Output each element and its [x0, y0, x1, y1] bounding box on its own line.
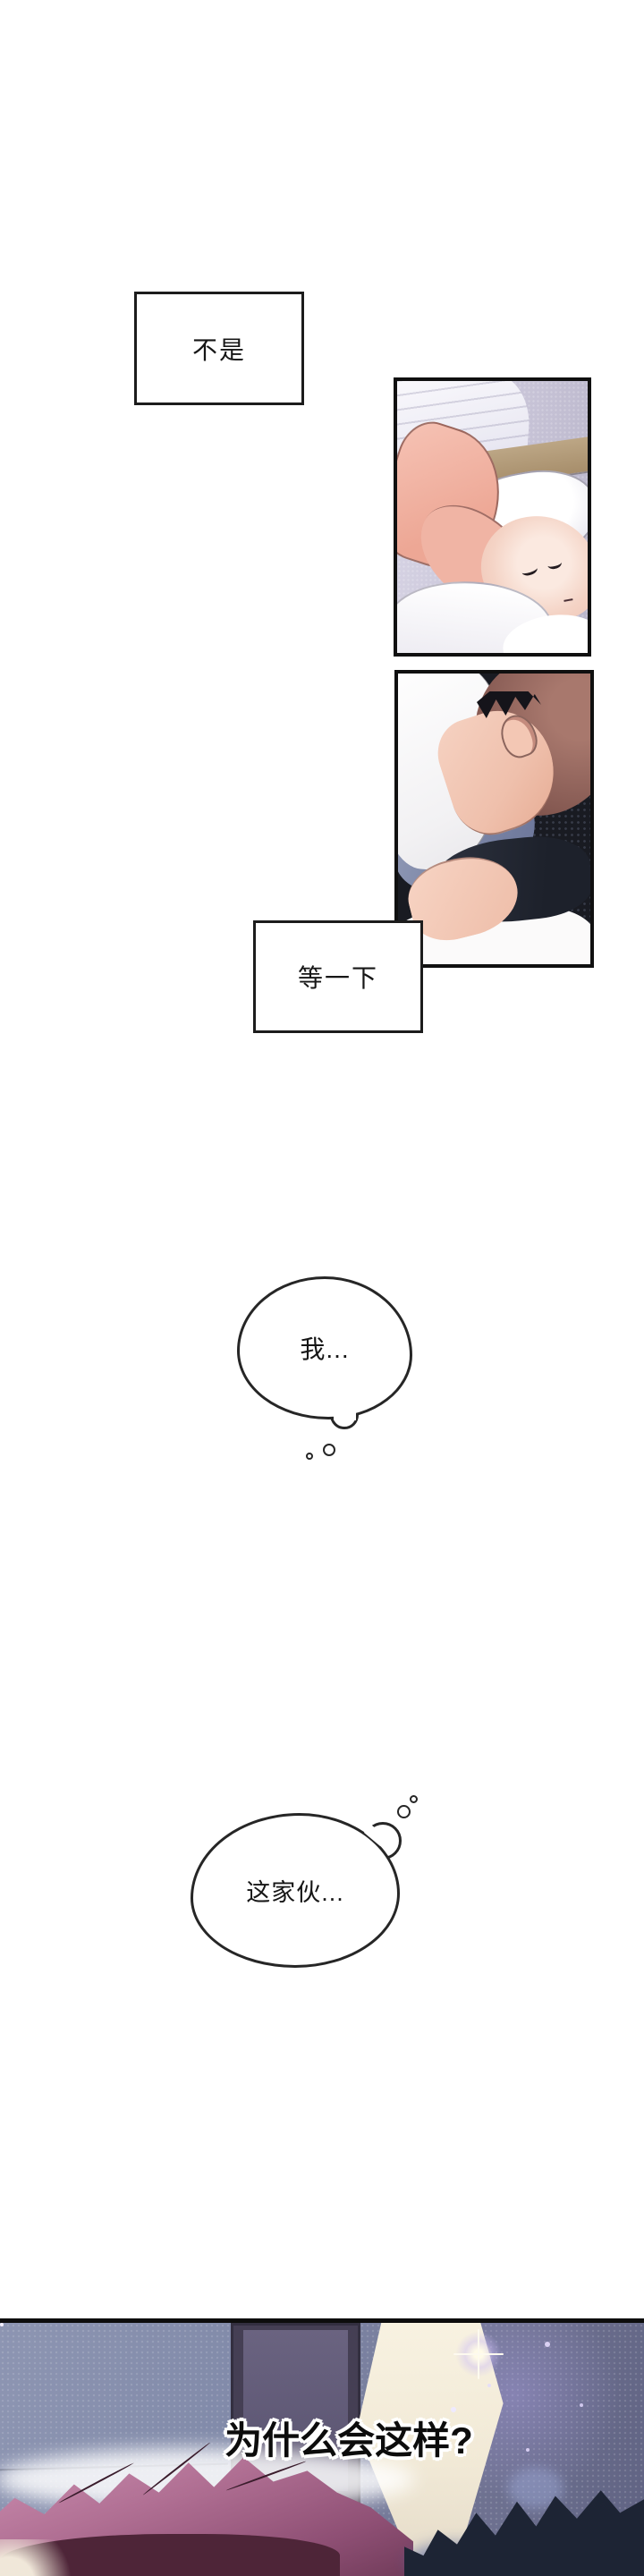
sparkle-dots — [0, 2323, 4, 2326]
sparkle-star — [453, 2329, 504, 2379]
thought-trail-circle — [323, 1444, 335, 1456]
thought-bubble-1: 我... — [237, 1276, 412, 1419]
caption-box-2: 等一下 — [253, 920, 423, 1033]
caption-box-1-text: 不是 — [192, 331, 246, 367]
thought-trail-circle — [306, 1453, 313, 1460]
bubble-seam-patch — [334, 1411, 356, 1420]
corner-light — [0, 2539, 80, 2576]
thought-trail-circle — [397, 1805, 411, 1818]
comic-panel-kiss — [394, 670, 594, 968]
thought-bubble-2-text: 这家伙... — [246, 1873, 344, 1908]
panel3-caption: 为什么会这样? — [215, 2411, 483, 2465]
comic-panel-sleeping — [394, 377, 591, 657]
caption-box-2-text: 等一下 — [298, 959, 378, 995]
comic-page: 不是 等一下 我... — [0, 0, 644, 2576]
thought-trail-circle — [410, 1795, 418, 1803]
thought-bubble-1-text: 我... — [300, 1330, 349, 1366]
comic-panel-night-room: 为什么会这样? — [0, 2318, 644, 2576]
caption-box-1: 不是 — [134, 292, 304, 405]
